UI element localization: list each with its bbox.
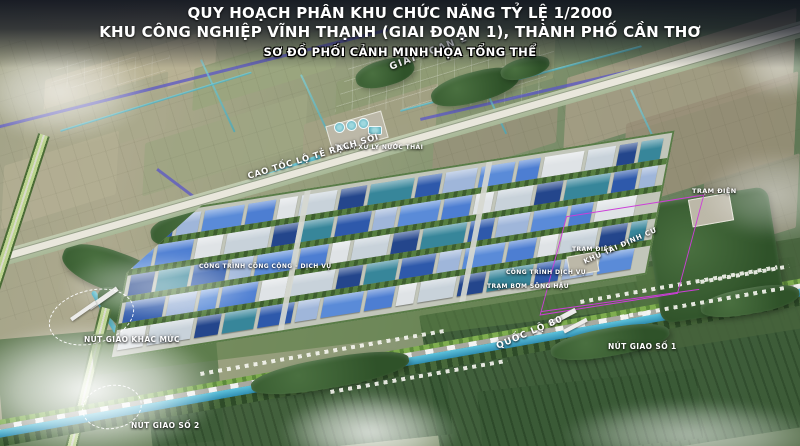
- label-public-service: CÔNG TRÌNH CÔNG CỘNG - DỊCH VỤ: [199, 263, 332, 270]
- title-line1: QUY HOẠCH PHÂN KHU CHỨC NĂNG TỶ LỆ 1/200…: [0, 4, 800, 22]
- title-line2: KHU CÔNG NGHIỆP VĨNH THẠNH (GIAI ĐOẠN 1)…: [0, 23, 800, 41]
- label-pump-station: TRẠM BƠM SÔNG HẬU: [487, 283, 569, 290]
- factory-building: [295, 298, 321, 322]
- wastewater-tank: [346, 120, 357, 131]
- label-service-works: CÔNG TRÌNH DỊCH VỤ: [506, 269, 586, 276]
- label-interchange-1: NÚT GIAO SỐ 1: [608, 342, 677, 351]
- subtitle: SƠ ĐỒ PHỐI CẢNH MINH HỌA TỔNG THỂ: [264, 45, 537, 59]
- factory-building: [395, 283, 417, 307]
- label-substation-right: TRẠM ĐIỆN: [692, 187, 737, 195]
- wastewater-tank: [334, 122, 345, 133]
- title-bar: QUY HOẠCH PHÂN KHU CHỨC NĂNG TỶ LỆ 1/200…: [0, 0, 800, 68]
- factory-building: [257, 302, 295, 328]
- factory-building: [364, 286, 396, 311]
- label-interchange-2: NÚT GIAO SỐ 2: [131, 421, 200, 430]
- label-interchange-grade: NÚT GIAO KHÁC MỨC: [84, 335, 180, 344]
- masterplan-poster: GIAI ĐOẠN 2 TRẠM XỬ LÝ NƯỚC THẢI CAO TỐC…: [0, 0, 800, 446]
